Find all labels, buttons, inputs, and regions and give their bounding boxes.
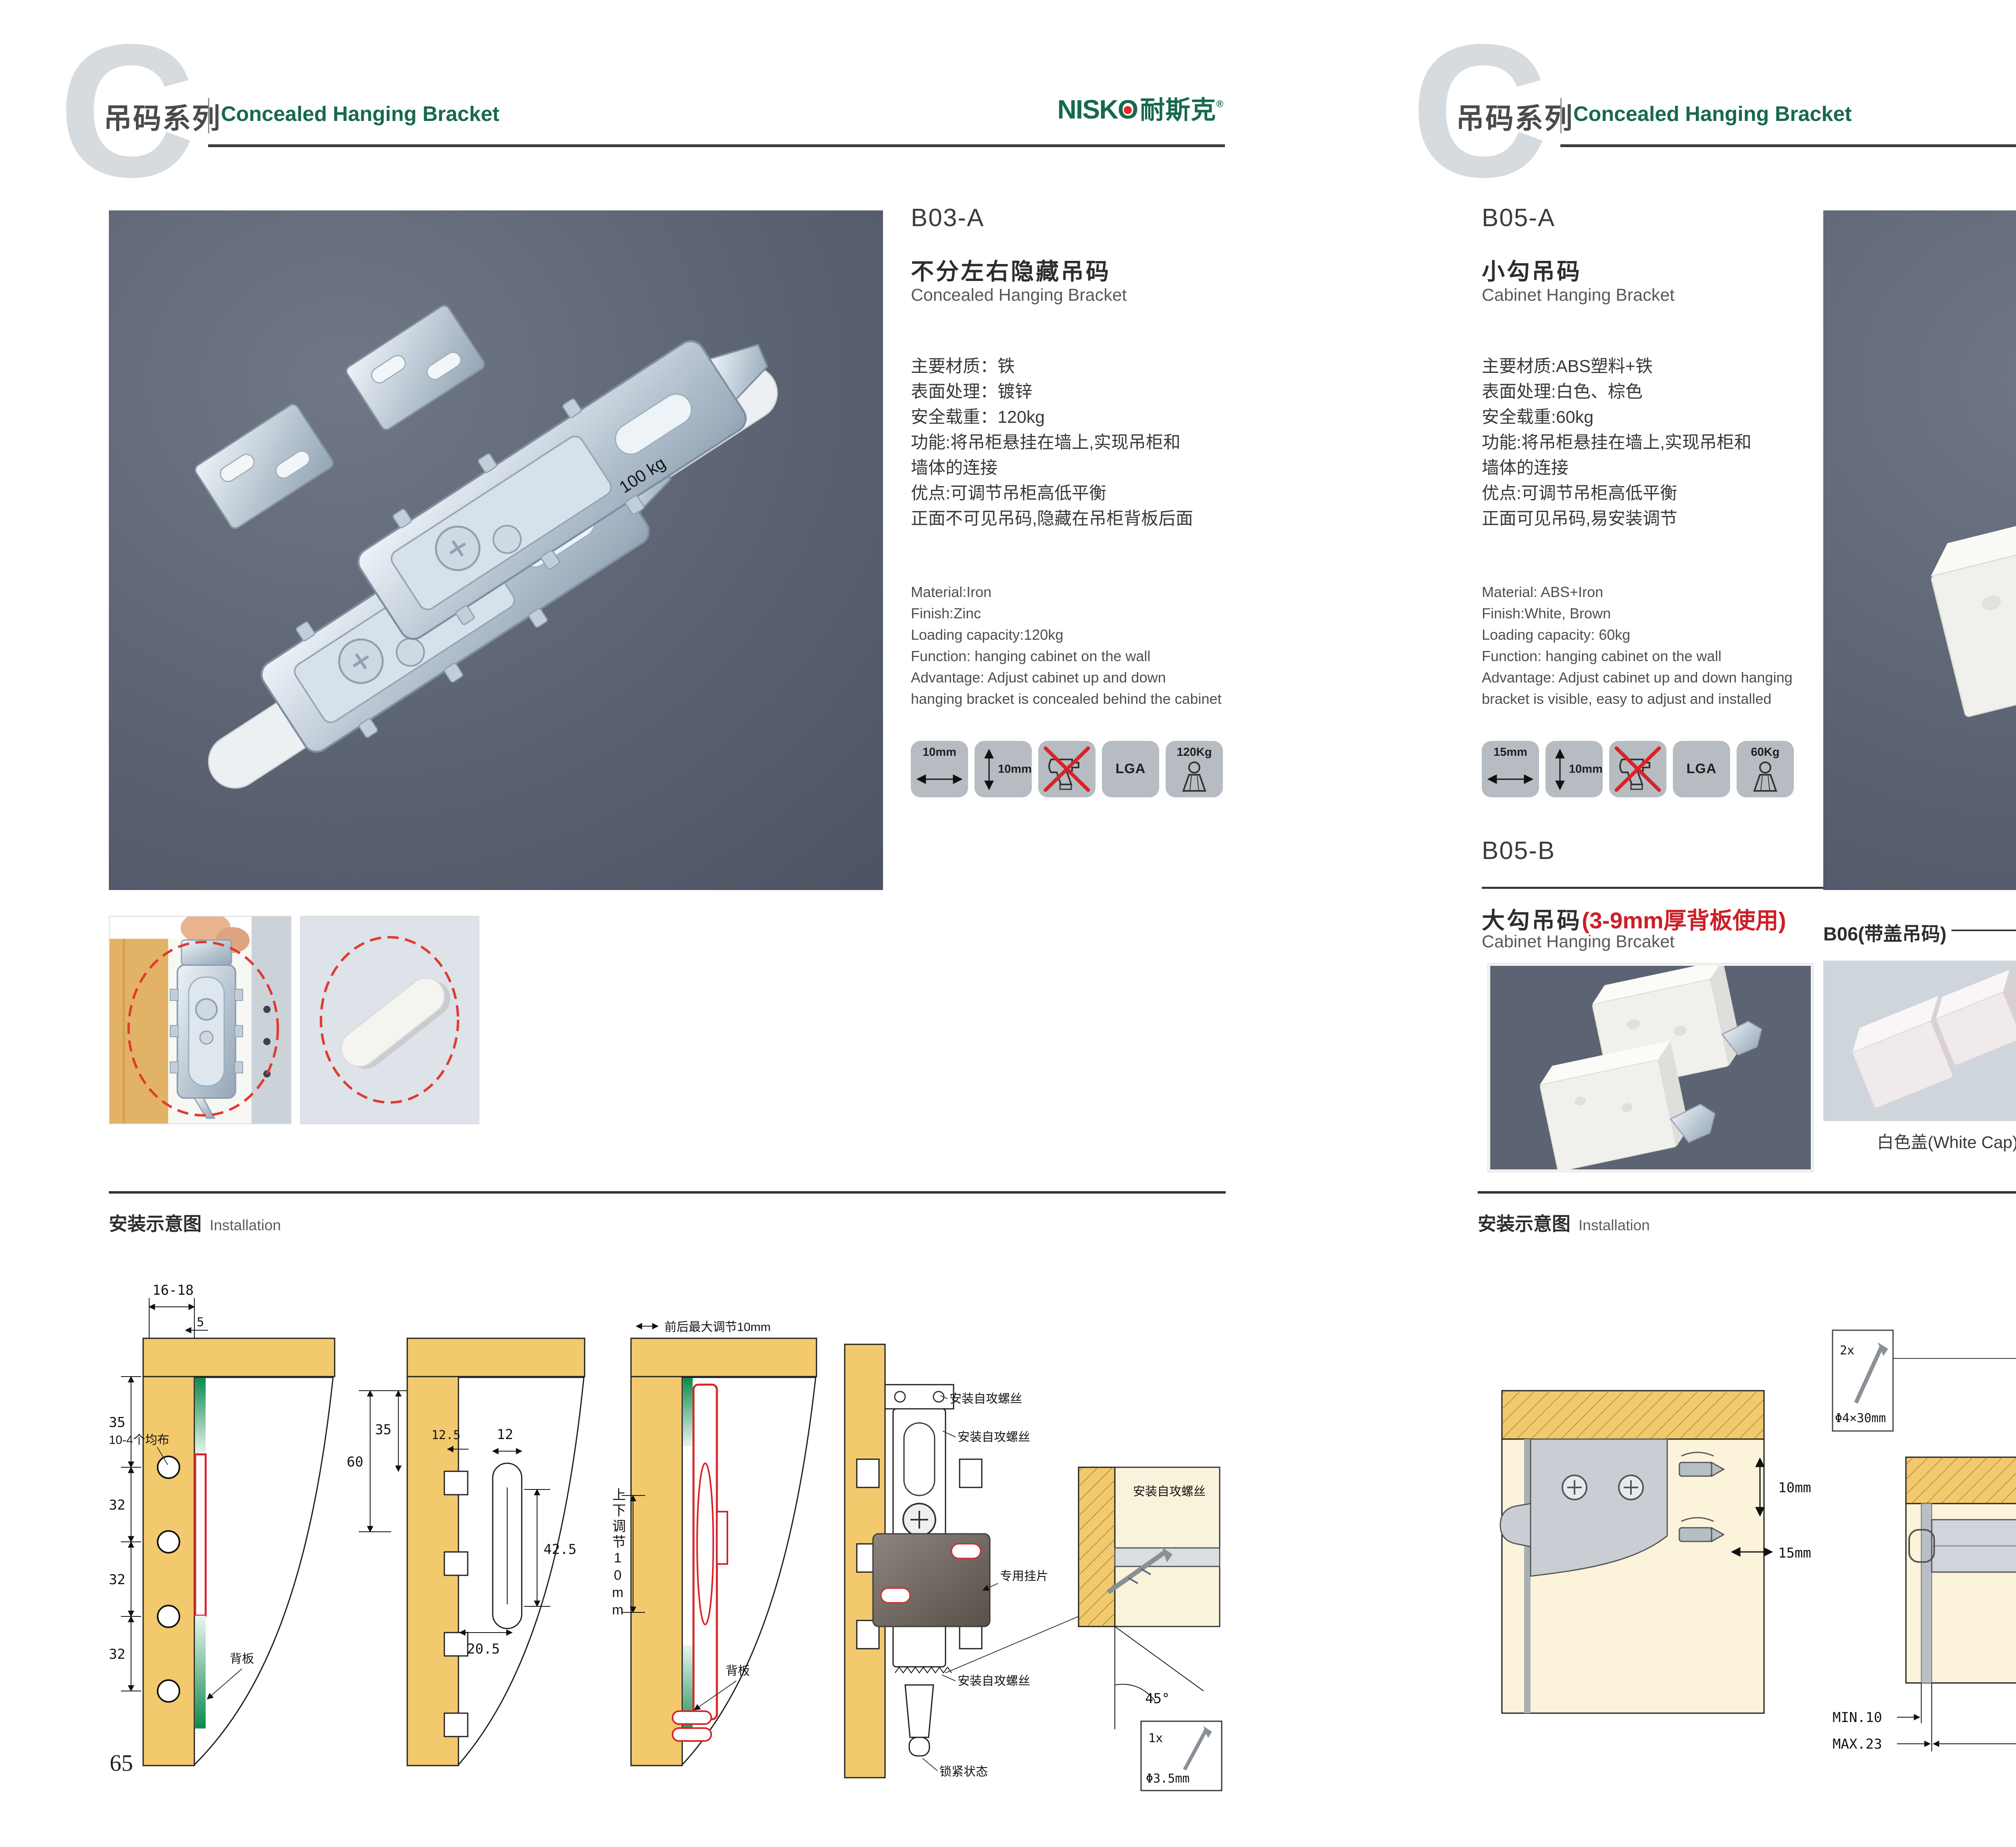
spec-line: Material: ABS+Iron bbox=[1482, 581, 1793, 603]
spec-line: Material:Iron bbox=[911, 581, 1222, 603]
svg-text:MAX.23: MAX.23 bbox=[1833, 1736, 1882, 1752]
spec-line: 安全载重:60kg bbox=[1482, 405, 1752, 430]
svg-text:1x: 1x bbox=[1148, 1731, 1163, 1745]
b06-rule bbox=[1951, 930, 2016, 931]
svg-text:10-4个均布: 10-4个均布 bbox=[109, 1433, 169, 1447]
svg-text:35: 35 bbox=[109, 1414, 125, 1431]
spec-line: Advantage: Adjust cabinet up and down bbox=[911, 667, 1222, 688]
product-name-en: Concealed Hanging Bracket bbox=[911, 285, 1127, 305]
svg-text:5: 5 bbox=[197, 1315, 204, 1329]
svg-text:安装自攻螺丝: 安装自攻螺丝 bbox=[950, 1392, 1022, 1406]
spec-line: bracket is visible, easy to adjust and i… bbox=[1482, 688, 1793, 709]
section-rule bbox=[1478, 1191, 2016, 1194]
header-divider bbox=[208, 98, 209, 133]
specs-en: Material:Iron Finish:Zinc Loading capaci… bbox=[911, 581, 1222, 709]
b06-title: B06(带盖吊码) bbox=[1823, 918, 1947, 946]
spec-line: 优点:可调节吊柜高低平衡 bbox=[911, 481, 1193, 506]
page-right: C 吊码系列 Concealed Hanging Bracket NISKO耐斯… bbox=[1352, 0, 2016, 1847]
header-divider bbox=[1560, 98, 1562, 133]
svg-text:Φ4×30mm: Φ4×30mm bbox=[1835, 1411, 1886, 1425]
spec-line: 墙体的连接 bbox=[1482, 456, 1752, 481]
svg-text:背板: 背板 bbox=[230, 1652, 254, 1666]
installation-title-zh: 安装示意图 bbox=[1478, 1213, 1570, 1234]
svg-text:32: 32 bbox=[109, 1497, 125, 1513]
svg-text:专用挂片: 专用挂片 bbox=[1000, 1570, 1048, 1583]
spec-line: Function: hanging cabinet on the wall bbox=[1482, 645, 1793, 667]
spec-line: 主要材质:ABS塑料+铁 bbox=[1482, 354, 1752, 379]
logo-cn: 耐斯克 bbox=[1140, 96, 1216, 124]
nisko-logo: NISKO耐斯克® bbox=[1057, 89, 1223, 126]
svg-text:32: 32 bbox=[109, 1646, 125, 1662]
page-left: C 吊码系列 Concealed Hanging Bracket NISKO耐斯… bbox=[0, 0, 1352, 1847]
svg-text:42.5: 42.5 bbox=[544, 1541, 577, 1558]
spec-line: Loading capacity: 60kg bbox=[1482, 624, 1793, 645]
product-photo-b05a bbox=[1823, 210, 2016, 890]
spec-line: 安全载重：120kg bbox=[911, 405, 1193, 430]
diagram-hook-adjustment: 10mm 15mm bbox=[1500, 1391, 1811, 1713]
svg-text:安装自攻螺丝: 安装自攻螺丝 bbox=[958, 1431, 1030, 1444]
no-drill-icon bbox=[1609, 741, 1666, 797]
product-name-zh: 不分左右隐藏吊码 bbox=[911, 253, 1111, 286]
svg-text:45°: 45° bbox=[1145, 1691, 1170, 1707]
installation-title: 安装示意图Installation bbox=[1478, 1209, 1650, 1236]
product-photo-b05b bbox=[1488, 963, 1813, 1172]
installation-title-en: Installation bbox=[210, 1217, 281, 1233]
width-adjust-icon: 10mm bbox=[911, 741, 968, 797]
install-photo bbox=[109, 916, 292, 1124]
spec-line: 功能:将吊柜悬挂在墙上,实现吊柜和 bbox=[911, 430, 1193, 456]
svg-text:12.5: 12.5 bbox=[431, 1428, 460, 1442]
logo-o-icon: O bbox=[1118, 94, 1137, 125]
product-code: B05-B bbox=[1482, 836, 1555, 865]
registered-mark: ® bbox=[1216, 99, 1223, 110]
spec-line: Loading capacity:120kg bbox=[911, 624, 1222, 645]
spec-line: 表面处理：镀锌 bbox=[911, 379, 1193, 405]
svg-text:背板: 背板 bbox=[726, 1664, 750, 1678]
product-photo-b03a: 100 kg bbox=[109, 210, 883, 890]
svg-text:锁紧状态: 锁紧状态 bbox=[939, 1765, 988, 1778]
product-code: B05-A bbox=[1482, 204, 1555, 232]
spec-line: 主要材质：铁 bbox=[911, 354, 1193, 379]
svg-text:60: 60 bbox=[347, 1454, 363, 1470]
svg-text:安装自攻螺丝: 安装自攻螺丝 bbox=[958, 1674, 1030, 1688]
cap-photo-white bbox=[1823, 961, 2016, 1121]
diagram-backpanel-slot: 60 35 12.5 12 42.5 20.5 bbox=[347, 1338, 585, 1766]
product-name-zh: 小勾吊码 bbox=[1482, 253, 1582, 286]
diagram-bracket-mounting: 安装自攻螺丝 安装自攻螺丝 专用挂片 安装自攻螺丝 锁紧状态 安装自攻螺丝 bbox=[845, 1344, 1222, 1791]
series-title-zh: 吊码系列 bbox=[104, 96, 221, 137]
series-title-en: Concealed Hanging Bracket bbox=[221, 102, 500, 126]
spec-line: 正面可见吊码,易安装调节 bbox=[1482, 506, 1752, 532]
diagram-screw-section: 2x Φ4×30mm 18 MIN.10 bbox=[1833, 1330, 2016, 1752]
spec-line: Function: hanging cabinet on the wall bbox=[911, 645, 1222, 667]
specs-zh: 主要材质:ABS塑料+铁 表面处理:白色、棕色 安全载重:60kg 功能:将吊柜… bbox=[1482, 354, 1752, 532]
feature-icons: 10mm 10mm LGA 120Kg bbox=[911, 741, 1229, 797]
svg-text:32: 32 bbox=[109, 1572, 125, 1588]
no-drill-icon bbox=[1038, 741, 1095, 797]
svg-text:16-18: 16-18 bbox=[152, 1282, 194, 1298]
lga-certificate-icon: LGA bbox=[1673, 741, 1730, 797]
spec-line: hanging bracket is concealed behind the … bbox=[911, 688, 1222, 709]
installation-title-zh: 安装示意图 bbox=[109, 1213, 202, 1234]
spec-line: 表面处理:白色、棕色 bbox=[1482, 379, 1752, 405]
svg-text:前后最大调节10mm: 前后最大调节10mm bbox=[664, 1321, 771, 1334]
logo-latin: NISKO bbox=[1057, 94, 1137, 124]
specs-en: Material: ABS+Iron Finish:White, Brown L… bbox=[1482, 581, 1793, 709]
svg-text:15mm: 15mm bbox=[1778, 1545, 1811, 1561]
width-adjust-icon: 15mm bbox=[1482, 741, 1539, 797]
header-rule bbox=[1560, 144, 2016, 147]
spec-line: Advantage: Adjust cabinet up and down ha… bbox=[1482, 667, 1793, 688]
height-adjust-icon: 10mm bbox=[975, 741, 1032, 797]
product-name-en: Cabinet Hanging Bracket bbox=[1482, 285, 1674, 305]
svg-text:35: 35 bbox=[375, 1422, 392, 1438]
product-name-en: Cabinet Hanging Brcaket bbox=[1482, 932, 1674, 952]
lga-certificate-icon: LGA bbox=[1102, 741, 1159, 797]
feature-icons: 15mm 10mm LGA 60Kg bbox=[1482, 741, 1800, 797]
vertical-adjust-label: 上下调节10mm bbox=[611, 1487, 625, 1624]
header-rule bbox=[208, 144, 1225, 147]
cap-label-white: 白色盖(White Cap) bbox=[1823, 1129, 2016, 1153]
svg-text:12: 12 bbox=[497, 1427, 513, 1443]
spec-line: 功能:将吊柜悬挂在墙上,实现吊柜和 bbox=[1482, 430, 1752, 456]
installation-diagram-b05: 10mm 15mm 2x Φ4×30mm bbox=[1478, 1270, 2016, 1794]
series-title-en: Concealed Hanging Bracket bbox=[1573, 102, 1852, 126]
svg-text:MIN.10: MIN.10 bbox=[1833, 1710, 1882, 1726]
svg-text:Φ3.5mm: Φ3.5mm bbox=[1146, 1772, 1189, 1786]
spec-line: Finish:White, Brown bbox=[1482, 603, 1793, 624]
installation-title-en: Installation bbox=[1579, 1217, 1650, 1233]
installation-diagram-b03a: 16-18 5 35 32 32 32 10-4 bbox=[109, 1270, 1226, 1794]
backpanel-note: (3-9mm厚背板使用) bbox=[1582, 908, 1786, 934]
product-name-zh: 大勾吊码(3-9mm厚背板使用) bbox=[1482, 902, 1786, 935]
product-code: B03-A bbox=[911, 204, 984, 232]
svg-text:2x: 2x bbox=[1840, 1344, 1854, 1358]
diagram-adjustment-range: 前后最大调节10mm 背板 bbox=[622, 1321, 816, 1766]
svg-text:安装自攻螺丝: 安装自攻螺丝 bbox=[1133, 1485, 1206, 1498]
spec-line: 墙体的连接 bbox=[911, 456, 1193, 481]
svg-text:20.5: 20.5 bbox=[467, 1641, 500, 1657]
load-capacity-icon: 120Kg bbox=[1166, 741, 1223, 797]
svg-text:10mm: 10mm bbox=[1778, 1480, 1811, 1496]
height-adjust-icon: 10mm bbox=[1545, 741, 1603, 797]
specs-zh: 主要材质：铁 表面处理：镀锌 安全载重：120kg 功能:将吊柜悬挂在墙上,实现… bbox=[911, 354, 1193, 532]
spec-line: 正面不可见吊码,隐藏在吊柜背板后面 bbox=[911, 506, 1193, 532]
diagram-backpanel-drilling: 16-18 5 35 32 32 32 10-4 bbox=[109, 1282, 335, 1766]
cap-photo bbox=[300, 916, 479, 1124]
spec-line: 优点:可调节吊柜高低平衡 bbox=[1482, 481, 1752, 506]
section-rule bbox=[109, 1191, 1226, 1194]
page-number: 65 bbox=[110, 1749, 133, 1776]
load-capacity-icon: 60Kg bbox=[1737, 741, 1794, 797]
installation-title: 安装示意图Installation bbox=[109, 1209, 281, 1236]
spec-line: Finish:Zinc bbox=[911, 603, 1222, 624]
series-title-zh: 吊码系列 bbox=[1456, 96, 1574, 137]
